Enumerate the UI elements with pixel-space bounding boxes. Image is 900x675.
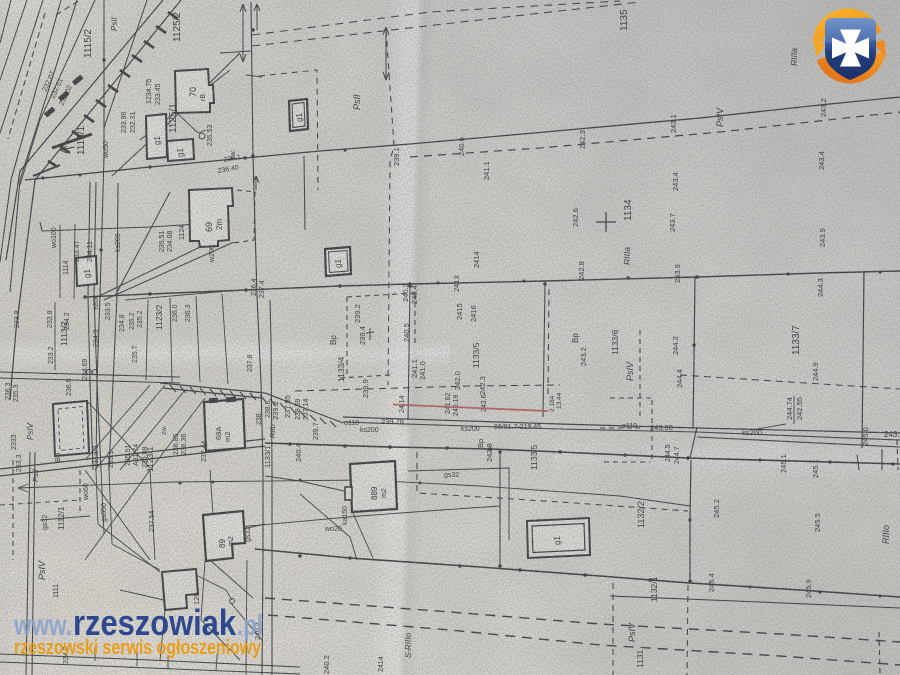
svg-text:rzeszowski serwis ogłoszeniowy: rzeszowski serwis ogłoszeniowy — [14, 637, 262, 659]
